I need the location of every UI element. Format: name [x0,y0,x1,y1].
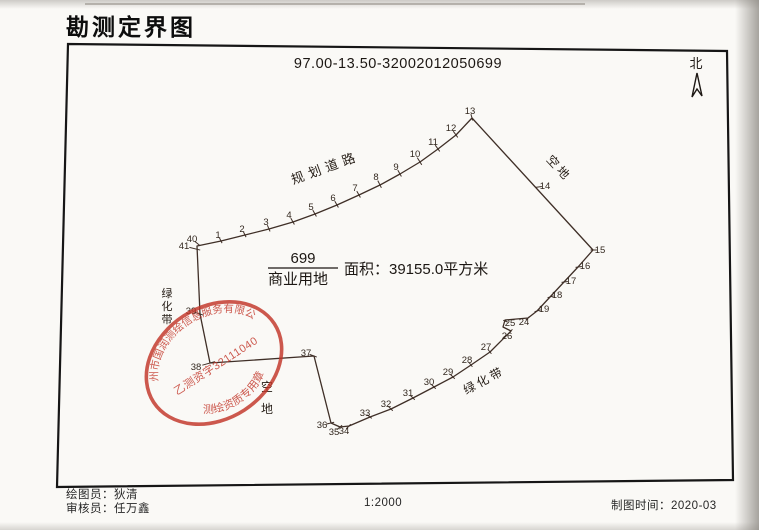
boundary-point-number: 35 [329,427,340,438]
boundary-point-number: 41 [179,241,190,252]
boundary-point-number: 19 [539,304,550,315]
parcel-area: 面积：39155.0平方米 [344,261,488,278]
boundary-point-number: 31 [403,388,414,399]
boundary-point-number: 11 [428,137,438,148]
boundary-point-number: 1 [215,230,220,241]
boundary-point-number: 10 [410,149,421,160]
boundary-point-number: 18 [552,290,563,301]
boundary-point-number: 5 [308,202,313,213]
north-label: 北 [689,56,702,71]
boundary-point-number: 25 [505,318,516,329]
boundary-point-number: 28 [462,355,473,366]
boundary-point-number: 36 [317,420,328,431]
boundary-point-number: 29 [443,367,454,378]
survey-map: 97.00-13.50-32002012050699 北 40411234567… [0,0,759,530]
stamp: 徐州市国润测绘信息服务有限公司 乙测资字32111040 测绘资质专用章 [123,277,305,450]
boundary-point-number: 8 [373,172,378,183]
boundary-point-number: 30 [424,377,435,388]
planned-road-label: 规划道路 [289,148,362,187]
map-scale: 1:2000 [364,497,402,509]
boundary-point-number: 15 [595,245,606,256]
boundary-point-number: 37 [301,348,312,359]
reviewer-credit: 审核员：任万鑫 [66,500,150,516]
boundary-point-number: 3 [263,217,268,228]
green-belt-label-left: 绿化带 [162,286,173,326]
boundary-point-number: 13 [465,106,476,117]
boundary-point-number: 7 [352,183,357,194]
parcel-label: 699 商业用地 面积：39155.0平方米 [268,250,488,288]
boundary-point-number: 4 [286,210,291,221]
boundary-point-tick [189,247,200,250]
boundary-point-number: 24 [519,317,530,328]
boundary-point-number: 6 [330,193,335,204]
boundary-point-number: 17 [566,276,577,287]
boundary-point-number: 16 [580,261,591,272]
parcel-number: 699 [290,250,315,267]
parcel-code: 97.00-13.50-32002012050699 [294,56,502,72]
boundary-point-number: 9 [393,162,398,173]
map-date: 制图时间：2020-03 [611,497,717,513]
boundary-point-number: 27 [481,342,492,353]
boundary-point-number: 12 [446,123,457,134]
north-arrow-icon [692,73,702,97]
boundary-point-number: 32 [381,399,392,410]
boundary-point-number: 33 [360,408,371,419]
boundary-point-number: 34 [339,426,350,437]
north-indicator: 北 [689,56,702,97]
vacant-land-label-right: 空地 [544,153,575,185]
boundary-point-number: 2 [239,224,244,235]
parcel-land-use: 商业用地 [268,271,328,288]
boundary-point-number: 14 [540,181,551,192]
boundary-point-number: 26 [502,331,513,342]
